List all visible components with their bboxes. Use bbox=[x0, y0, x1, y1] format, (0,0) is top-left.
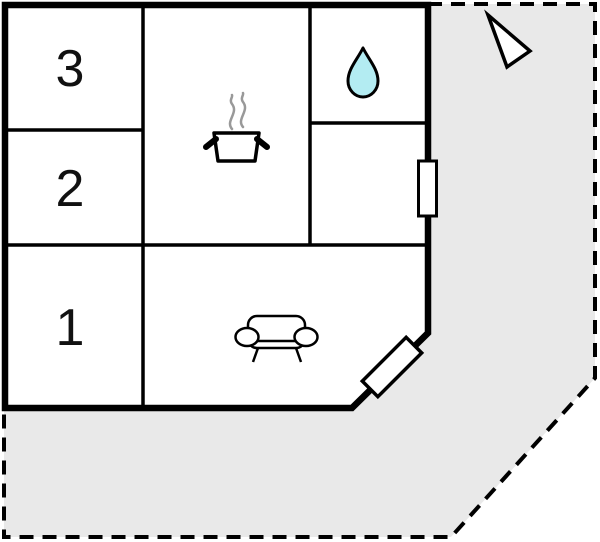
floor-plan: 3 2 1 bbox=[0, 0, 600, 542]
sofa-armrest-right bbox=[295, 328, 318, 346]
room-label-1: 1 bbox=[56, 299, 85, 357]
window-marker bbox=[419, 161, 437, 216]
pot-body bbox=[214, 133, 259, 161]
sofa-armrest-left bbox=[236, 328, 259, 346]
floor-plan-drawing: 3 2 1 bbox=[0, 0, 600, 542]
room-label-2: 2 bbox=[56, 160, 85, 218]
room-label-3: 3 bbox=[56, 40, 85, 98]
